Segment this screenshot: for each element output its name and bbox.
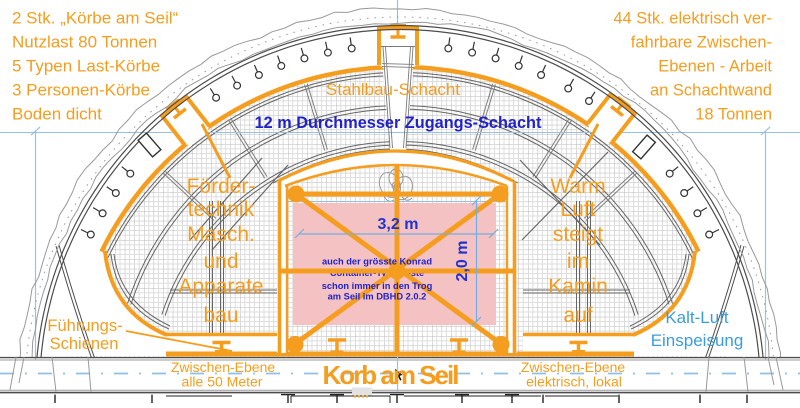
svg-text:Förder-: Förder- xyxy=(187,175,256,198)
svg-text:schon immer in den Trog: schon immer in den Trog xyxy=(322,281,433,291)
svg-text:Nutzlast 80 Tonnen: Nutzlast 80 Tonnen xyxy=(12,33,157,52)
svg-text:Warm: Warm xyxy=(550,175,605,198)
svg-text:steigt: steigt xyxy=(553,223,603,246)
svg-text:Schienen: Schienen xyxy=(50,335,119,353)
svg-text:technik: technik xyxy=(188,198,255,221)
svg-text:Ebenen - Arbeit: Ebenen - Arbeit xyxy=(658,58,772,76)
svg-text:am Seil im DBHD 2.0.2: am Seil im DBHD 2.0.2 xyxy=(328,292,427,302)
svg-text:und: und xyxy=(203,250,238,273)
svg-text:Luft: Luft xyxy=(560,198,595,221)
svg-text:Boden dicht: Boden dicht xyxy=(12,105,102,124)
svg-text:Apparate: Apparate xyxy=(178,275,263,298)
svg-text:auf: auf xyxy=(563,304,592,327)
svg-text:Korb am Seil: Korb am Seil xyxy=(323,360,459,390)
svg-text:2 Stk. „Körbe am Seil“: 2 Stk. „Körbe am Seil“ xyxy=(12,9,179,28)
svg-text:an Schachtwand: an Schachtwand xyxy=(650,82,772,100)
svg-text:elektrisch, lokal: elektrisch, lokal xyxy=(526,374,622,390)
svg-text:5 Typen Last-Körbe: 5 Typen Last-Körbe xyxy=(12,57,160,76)
svg-text:bau: bau xyxy=(203,304,238,327)
svg-text:12 m Durchmesser Zugangs-Schac: 12 m Durchmesser Zugangs-Schacht xyxy=(255,114,542,132)
svg-text:Kamin: Kamin xyxy=(548,275,608,298)
svg-text:alle 50 Meter: alle 50 Meter xyxy=(182,374,263,390)
svg-text:2,0 m: 2,0 m xyxy=(454,241,471,282)
svg-text:auch der grösste Konrad: auch der grösste Konrad xyxy=(322,257,432,267)
svg-text:Kalt-Luft: Kalt-Luft xyxy=(665,308,729,327)
svg-text:fahrbare Zwischen-: fahrbare Zwischen- xyxy=(631,34,772,52)
svg-text:Stahlbau-Schacht: Stahlbau-Schacht xyxy=(326,80,460,99)
svg-text:3,2 m: 3,2 m xyxy=(378,216,419,233)
svg-text:Masch.: Masch. xyxy=(187,223,255,246)
svg-text:18 Tonnen: 18 Tonnen xyxy=(695,106,772,124)
svg-text:3 Personen-Körbe: 3 Personen-Körbe xyxy=(12,81,150,100)
svg-text:im: im xyxy=(567,250,589,273)
svg-text:Einspeisung: Einspeisung xyxy=(651,331,744,350)
svg-text:Führungs-: Führungs- xyxy=(47,317,122,335)
svg-text:44 Stk. elektrisch ver-: 44 Stk. elektrisch ver- xyxy=(613,10,772,28)
